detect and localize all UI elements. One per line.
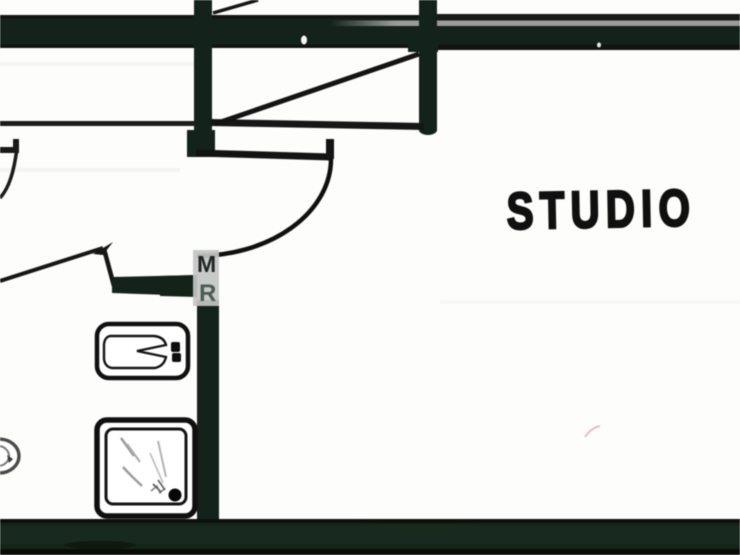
svg-text:M: M: [197, 251, 216, 277]
svg-text:R: R: [199, 280, 216, 307]
svg-text:STUDIO: STUDIO: [506, 178, 696, 240]
